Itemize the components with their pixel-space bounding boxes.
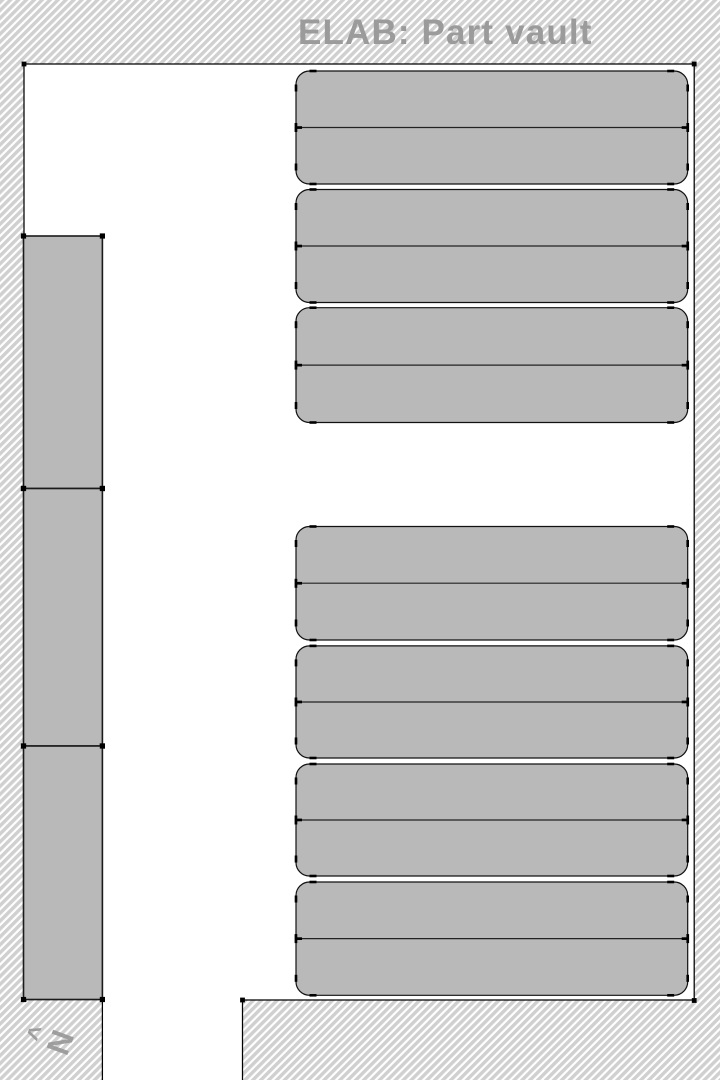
svg-text:ELAB: Part vault: ELAB: Part vault — [298, 13, 593, 52]
